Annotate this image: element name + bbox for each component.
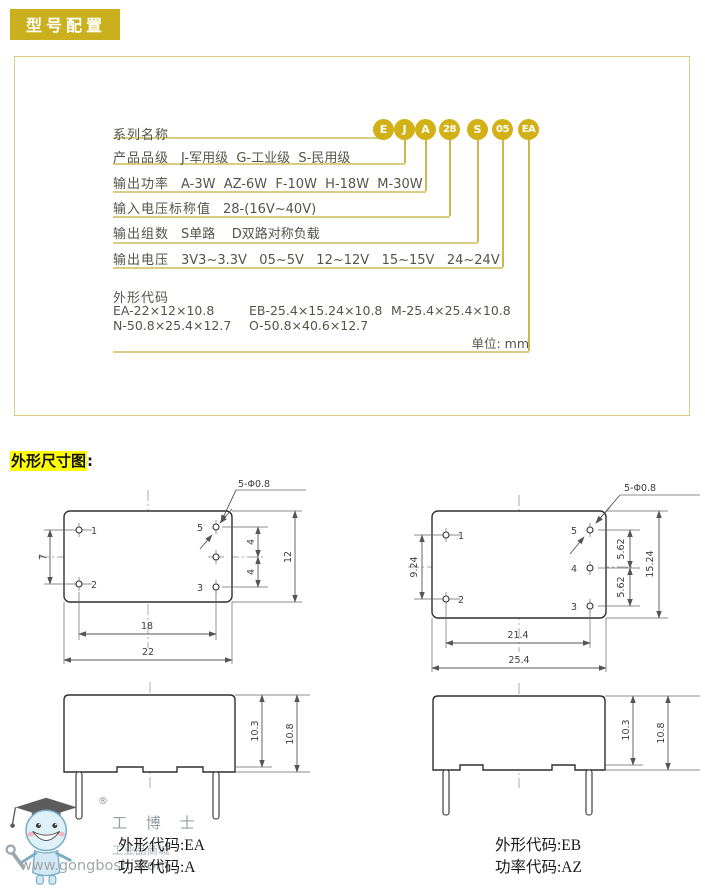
pin-number: 1 xyxy=(458,531,464,542)
row-content: S单路 D双路对称负载 xyxy=(181,223,320,242)
dim-label: 18 xyxy=(141,621,153,632)
row-label: 系列名称 xyxy=(113,124,169,143)
hole-note: 5-Φ0.8 xyxy=(238,479,270,490)
dimension-section-colon: : xyxy=(87,452,93,470)
registered-mark: ® xyxy=(98,796,108,807)
eb-outline-code: 外形代码:EB xyxy=(495,835,582,857)
eb-caption: 外形代码:EB 功率代码:AZ xyxy=(495,835,582,879)
connector-line xyxy=(528,139,530,351)
outline-code: O-50.8×40.6×12.7 xyxy=(249,318,368,333)
eb-side-view: 10.3 10.8 xyxy=(433,683,700,815)
hole-note: 5-Φ0.8 xyxy=(624,483,656,494)
pin-number: 5 xyxy=(197,523,203,534)
dim-label: 15.24 xyxy=(645,550,656,577)
dimension-section-label: 外形尺寸图: xyxy=(10,450,93,471)
watermark-brand: 工 博 士 xyxy=(112,812,202,833)
connector-line xyxy=(404,139,406,163)
dim-label: 12 xyxy=(283,551,294,563)
unit-label: 单位: mm xyxy=(471,333,529,352)
model-row-series: 系列名称 xyxy=(113,124,181,143)
row-label: 产品品级 xyxy=(113,147,169,166)
dimension-drawings: 1 2 5 3 5-Φ0.8 7 4 4 12 18 22 xyxy=(0,470,705,830)
series-code-badge: J xyxy=(394,119,415,140)
dim-label: 22 xyxy=(142,647,154,658)
dim-label: 7 xyxy=(38,554,49,560)
row-label: 输入电压标称值 xyxy=(113,198,211,217)
row-content: 28-(16V~40V) xyxy=(223,202,316,217)
dim-label: 9.24 xyxy=(409,556,420,577)
ea-power-code: 功率代码:A xyxy=(118,857,205,879)
ea-top-view: 1 2 5 3 5-Φ0.8 7 4 4 12 18 22 xyxy=(38,479,306,664)
connector-line xyxy=(477,139,479,242)
row-underline xyxy=(113,242,478,244)
model-row-input-voltage: 输入电压标称值 28-(16V~40V) xyxy=(113,198,316,217)
dim-label: 5.62 xyxy=(616,538,627,559)
ea-caption: 外形代码:EA 功率代码:A xyxy=(118,835,205,879)
dim-label: 10.3 xyxy=(250,720,261,741)
row-label: 输出组数 xyxy=(113,223,169,242)
series-code-badge: S xyxy=(467,119,488,140)
pin-number: 3 xyxy=(197,583,203,594)
eb-power-code: 功率代码:AZ xyxy=(495,857,582,879)
row-label: 输出功率 xyxy=(113,173,169,192)
outline-code: N-50.8×25.4×12.7 xyxy=(113,318,231,333)
row-label: 输出电压 xyxy=(113,249,169,268)
row-content: 3V3~3.3V 05~5V 12~12V 15~15V 24~24V xyxy=(181,253,500,268)
dimension-section-highlight: 外形尺寸图 xyxy=(10,451,87,471)
connector-line xyxy=(502,139,504,267)
dim-label: 4 xyxy=(246,569,257,575)
pin-number: 2 xyxy=(91,580,97,591)
row-content: J-军用级 G-工业级 S-民用级 xyxy=(181,147,350,166)
outline-code-line2: N-50.8×25.4×12.7 O-50.8×40.6×12.7 xyxy=(113,318,137,378)
model-row-power: 输出功率 A-3W AZ-6W F-10W H-18W M-30W xyxy=(113,173,423,192)
pin-number: 1 xyxy=(91,526,97,537)
outline-code: EB-25.4×15.24×10.8 xyxy=(249,303,382,318)
series-code-badge: A xyxy=(415,119,436,140)
model-config-box: 系列名称 产品品级 J-军用级 G-工业级 S-民用级 输出功率 A-3W AZ… xyxy=(14,56,690,416)
model-row-output-voltage: 输出电压 3V3~3.3V 05~5V 12~12V 15~15V 24~24V xyxy=(113,249,500,268)
model-row-grade: 产品品级 J-军用级 G-工业级 S-民用级 xyxy=(113,147,350,166)
dim-label: 4 xyxy=(246,539,257,545)
row-content: A-3W AZ-6W F-10W H-18W M-30W xyxy=(181,177,423,192)
datasheet-page: 型号配置 系列名称 产品品级 J-军用级 G-工业级 S-民用级 输出功率 A-… xyxy=(0,0,705,888)
dim-label: 10.8 xyxy=(285,723,296,744)
eb-top-view: 1 2 5 4 3 5-Φ0.8 9.24 5.62 5.62 15.24 21… xyxy=(408,483,700,672)
dim-label: 10.8 xyxy=(656,722,667,743)
outline-code: EA-22×12×10.8 xyxy=(113,303,214,318)
section-header-badge: 型号配置 xyxy=(10,9,120,40)
series-code-badge: EA xyxy=(518,119,539,140)
dim-label: 5.62 xyxy=(616,576,627,597)
pin-number: 2 xyxy=(458,595,464,606)
dim-label: 25.4 xyxy=(508,655,529,666)
pin-number: 4 xyxy=(571,564,577,575)
series-code-badge: E xyxy=(373,119,394,140)
model-row-output-groups: 输出组数 S单路 D双路对称负载 xyxy=(113,223,320,242)
outline-code: M-25.4×25.4×10.8 xyxy=(391,303,511,318)
series-code-badge: 05 xyxy=(492,119,513,140)
ea-outline-code: 外形代码:EA xyxy=(118,835,205,857)
pin-number: 5 xyxy=(571,526,577,537)
outline-bottom-underline xyxy=(113,351,529,353)
series-code-badge: 28 xyxy=(439,119,460,140)
connector-line xyxy=(449,139,451,216)
dim-label: 10.3 xyxy=(621,719,632,740)
pin-number: 3 xyxy=(571,602,577,613)
connector-line xyxy=(425,139,427,191)
dim-label: 21.4 xyxy=(507,630,528,641)
